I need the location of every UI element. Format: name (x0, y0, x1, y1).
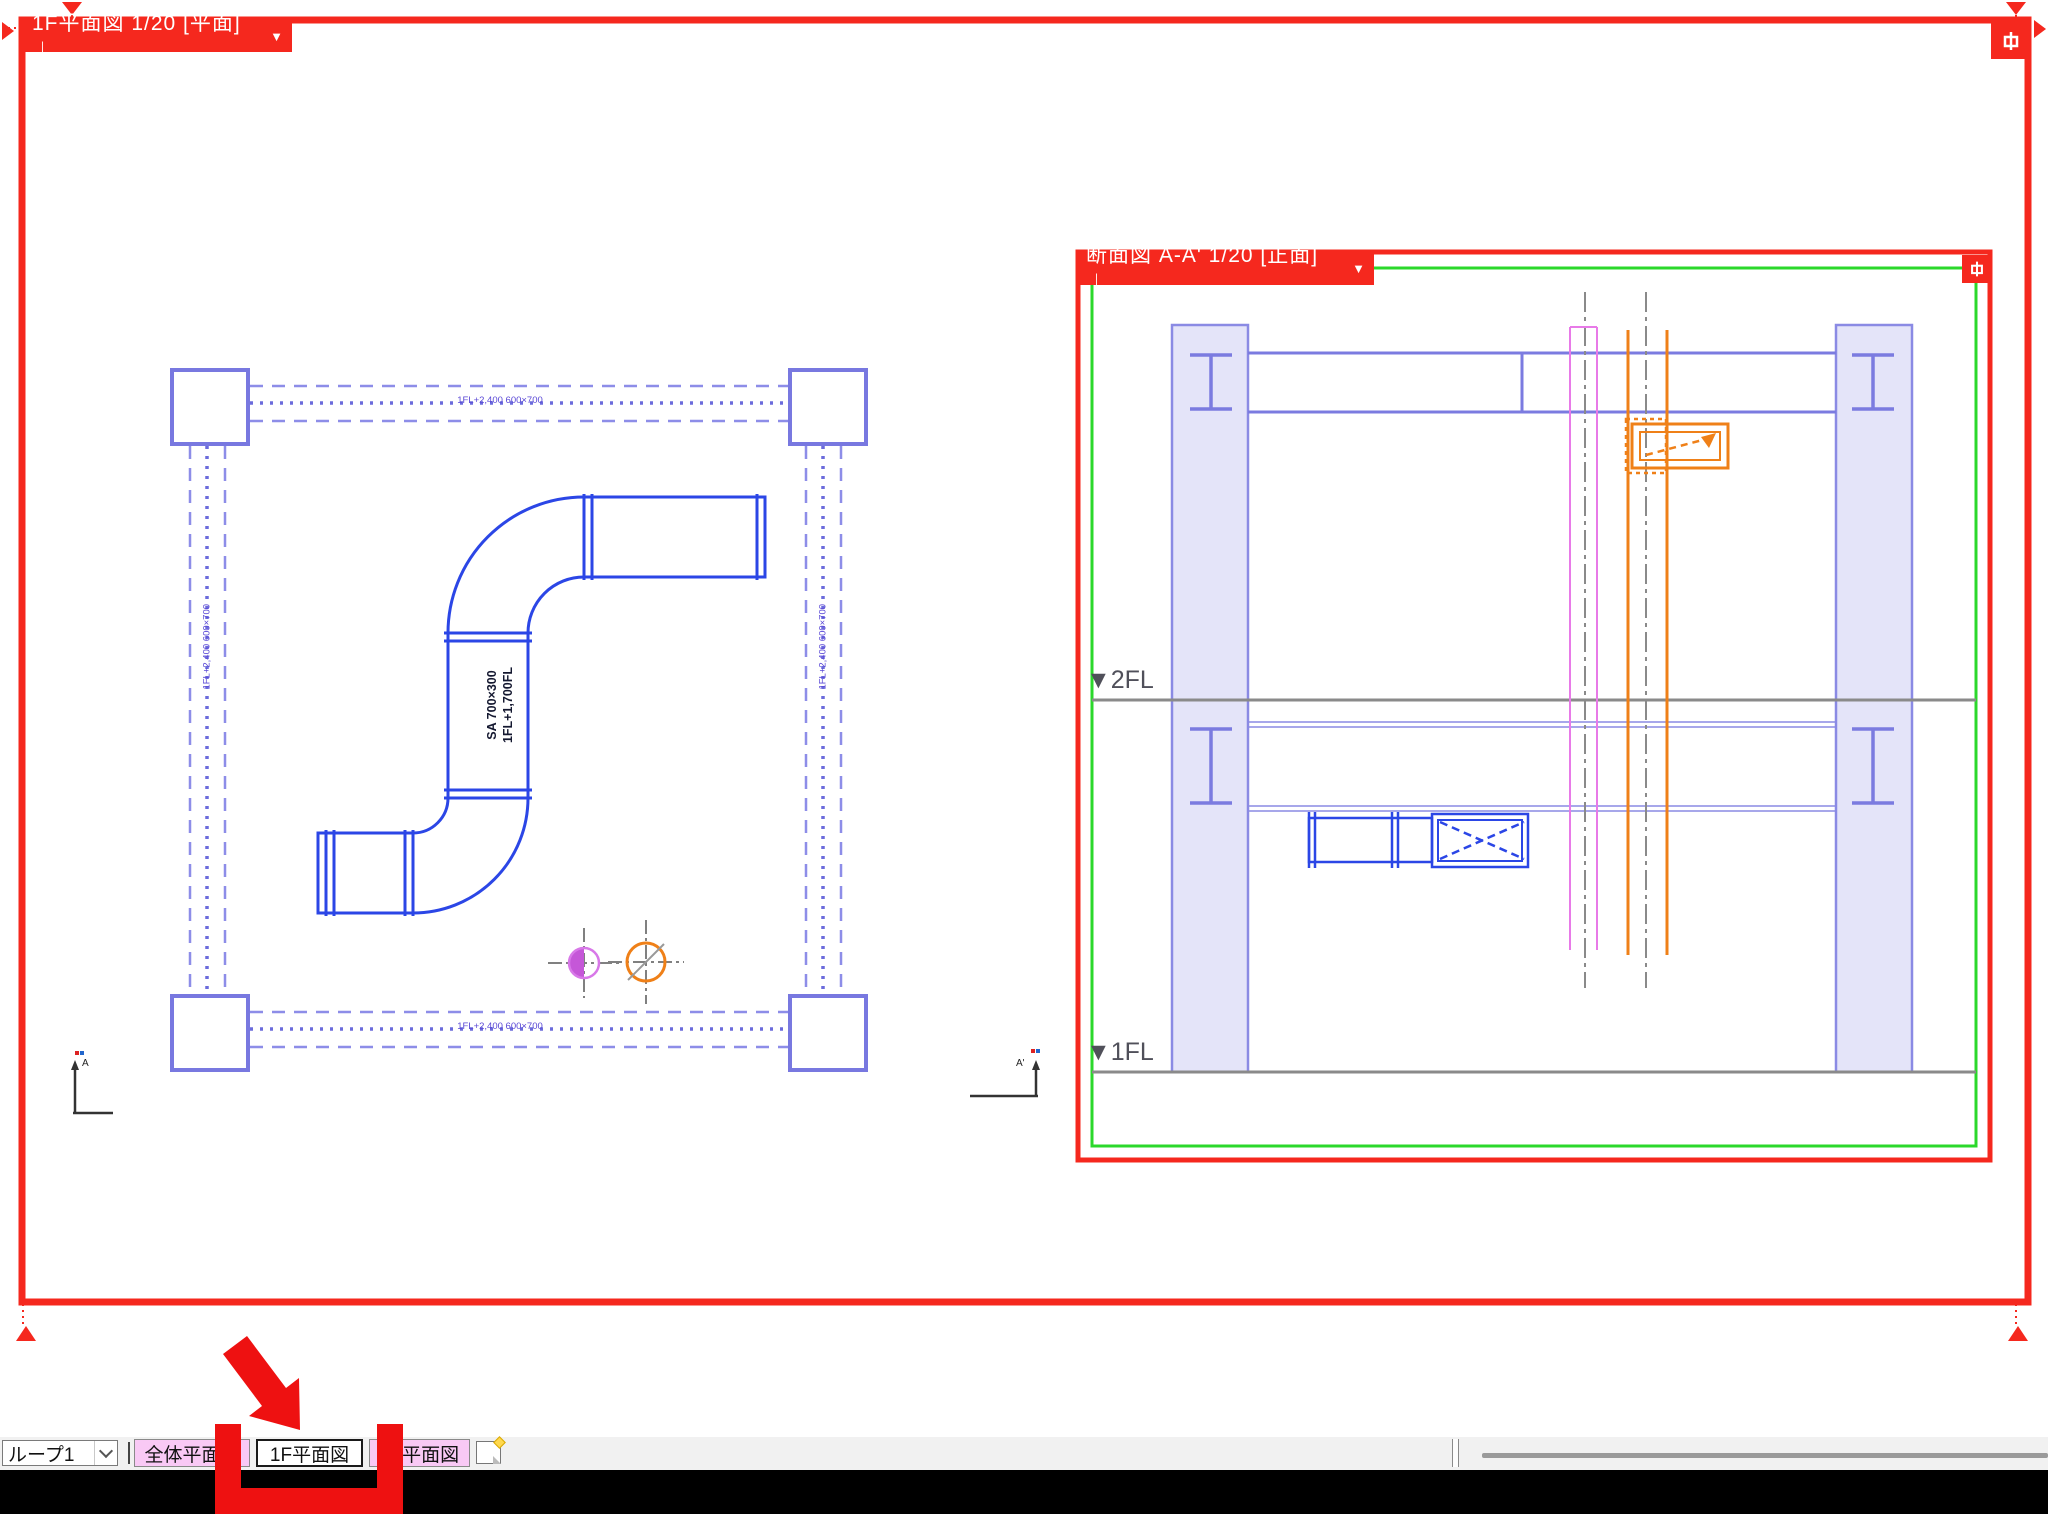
magenta-riser-fill[interactable] (569, 948, 584, 978)
group-selector-value: ループ1 (3, 1440, 94, 1467)
plan-view-title: 1F平面図 1/20 [平面]｜ (32, 7, 256, 67)
application-canvas: 1F平面図 1/20 [平面]｜ ▼ 断面図 A-A' 1/20 [正面]｜ ▼… (0, 0, 2048, 1514)
plan-view-pin-button[interactable] (1991, 23, 2030, 59)
plan-beam-label-left: 1FL+2,400 600×700 (202, 587, 212, 707)
group-selector[interactable]: ループ1 (2, 1440, 118, 1466)
bottom-black-strip (0, 1470, 2048, 1514)
plan-view-title-bar[interactable]: 1F平面図 1/20 [平面]｜ ▼ (24, 21, 292, 52)
plan-duct-label: SA 700×300 1FL+1,700FL (485, 655, 521, 755)
plan-riser-symbols[interactable] (548, 920, 684, 1004)
chevron-down-icon (99, 1444, 113, 1458)
section-grid-centerlines (1585, 292, 1646, 988)
section-duct-blue[interactable] (1309, 812, 1528, 868)
section-duct-magenta[interactable] (1570, 327, 1597, 950)
section-view-title-bar[interactable]: 断面図 A-A' 1/20 [正面]｜ ▼ (1078, 252, 1374, 285)
tab-zentai-heimenzu[interactable]: 全体平面図 (134, 1439, 250, 1467)
section-view-title: 断面図 A-A' 1/20 [正面]｜ (1086, 239, 1338, 299)
tab-1f-heimenzu[interactable]: 1F平面図 (256, 1439, 363, 1467)
section-view-pin-button[interactable] (1962, 255, 1992, 283)
section-duct-orange[interactable] (1626, 330, 1728, 955)
cad-canvas[interactable] (0, 0, 2048, 1514)
pin-icon (2000, 30, 2022, 52)
plan-view-dropdown-icon[interactable]: ▼ (270, 29, 284, 44)
pin-icon (1968, 260, 1986, 278)
section-view-dropdown-icon[interactable]: ▼ (1352, 261, 1366, 276)
plan-beam-label-bottom: 1FL+2,400 600×700 (420, 1022, 580, 1032)
horizontal-scrollbar-thumb[interactable] (1482, 1453, 2048, 1458)
plan-beam-label-top: 1FL+2,400 600×700 (420, 396, 580, 406)
new-sparkle-icon (493, 1436, 506, 1449)
section-marker-label-a-prime: A' (1016, 1058, 1025, 1069)
new-sheet-button[interactable] (476, 1441, 501, 1464)
tab-2f-heimenzu[interactable]: 2F平面図 (369, 1439, 470, 1467)
plan-beam-label-right: 1FL+2,400 600×700 (818, 587, 828, 707)
steel-i-beam-glyphs (1190, 355, 1894, 803)
page-fold-icon (493, 1456, 501, 1464)
sheet-tab-bar: ループ1 全体平面図 1F平面図 2F平面図 (0, 1437, 2048, 1470)
tabbar-splitter-handle[interactable] (1452, 1439, 1459, 1467)
selection-handles[interactable] (2, 2, 2046, 1341)
level-label-2fl: ▼2FL (1086, 666, 1154, 695)
level-label-1fl: ▼1FL (1086, 1038, 1154, 1067)
section-beams[interactable] (1190, 353, 1894, 811)
plan-view-frame[interactable] (22, 20, 2028, 1302)
section-marker-label-a: A (82, 1058, 89, 1069)
plan-duct[interactable] (318, 494, 765, 916)
group-selector-dropdown-button[interactable] (94, 1441, 117, 1465)
